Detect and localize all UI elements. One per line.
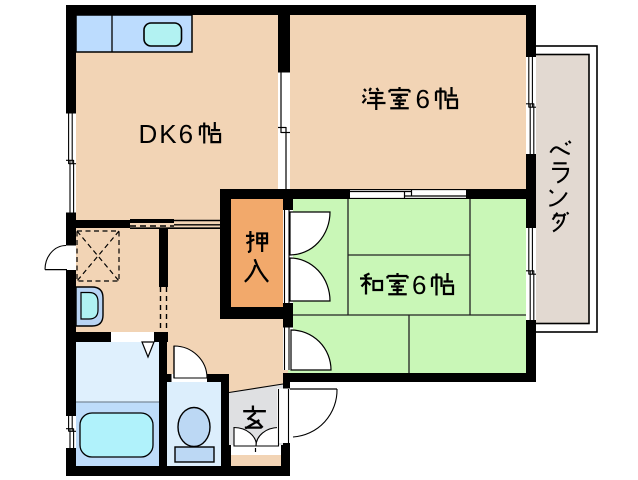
svg-text:6: 6 <box>416 84 430 114</box>
svg-text:6: 6 <box>412 270 426 300</box>
svg-text:DK6: DK6 <box>139 119 196 149</box>
